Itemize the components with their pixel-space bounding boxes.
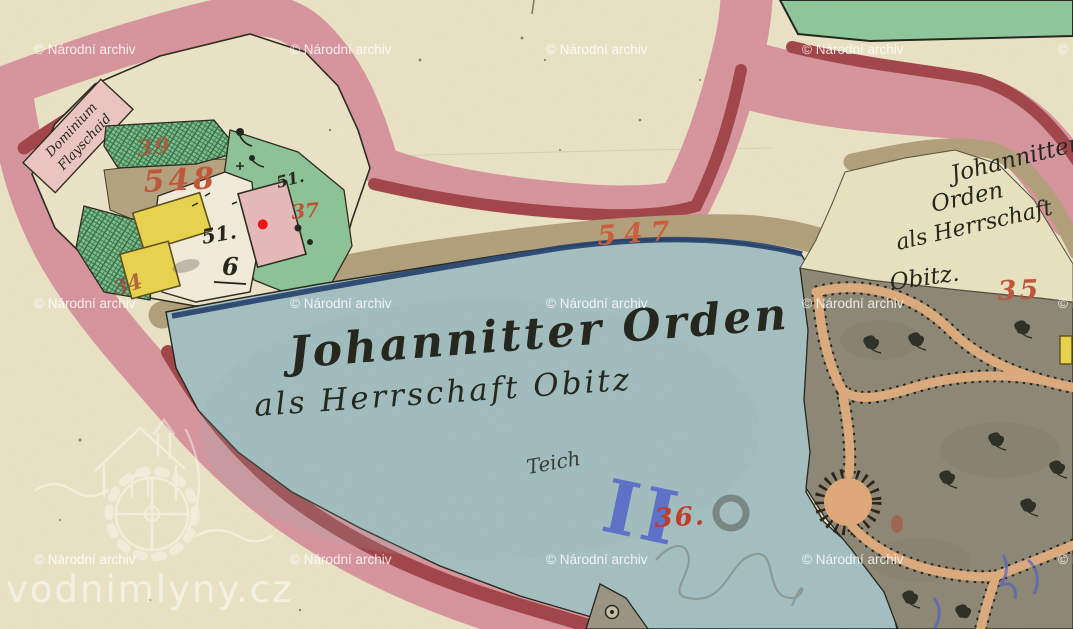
watermark-text: © Národní archiv (802, 42, 904, 57)
watermark-text: © Národní archiv (1058, 296, 1073, 311)
watermark-text: © Národní archiv (34, 42, 136, 57)
map-canvas: Dominium Flayschaid 548 39 34 3 (0, 0, 1073, 629)
watermark-text: © Národní archiv (546, 42, 648, 57)
watermark-text: © Národní archiv (34, 552, 136, 567)
watermark-text: © Národní archiv (1058, 42, 1073, 57)
watermark-text: © Národní archiv (802, 552, 904, 567)
watermark-text: © Národní archiv (802, 296, 904, 311)
watermark-text: © Národní archiv (546, 296, 648, 311)
watermark-text: © Národní archiv (290, 42, 392, 57)
paper-grain-overlay (0, 0, 1073, 629)
watermark-text: © Národní archiv (290, 552, 392, 567)
watermark-text: © Národní archiv (34, 296, 136, 311)
watermark-text: © Národní archiv (290, 296, 392, 311)
watermark-text: © Národní archiv (1058, 552, 1073, 567)
brand-watermark: vodnimlyny.cz (6, 568, 294, 611)
scanned-cadastral-map-sheet: Dominium Flayschaid 548 39 34 3 (0, 0, 1073, 629)
watermark-text: © Národní archiv (546, 552, 648, 567)
